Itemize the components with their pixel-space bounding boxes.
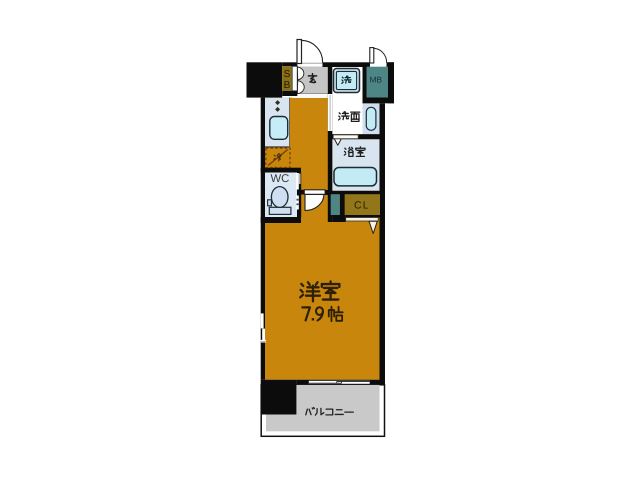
- svg-text:WC: WC: [270, 173, 289, 185]
- svg-text:B: B: [284, 80, 291, 91]
- svg-text:S: S: [284, 69, 291, 80]
- svg-text:MB: MB: [370, 74, 383, 84]
- svg-text:CL: CL: [354, 200, 370, 212]
